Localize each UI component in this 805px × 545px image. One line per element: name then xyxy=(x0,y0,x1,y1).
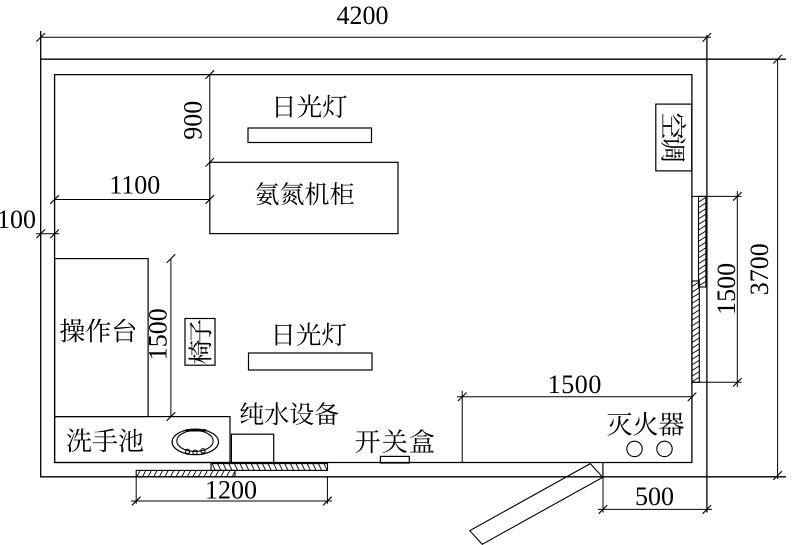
svg-text:3700: 3700 xyxy=(745,243,774,295)
svg-text:1500: 1500 xyxy=(712,263,741,315)
svg-text:4200: 4200 xyxy=(337,1,389,30)
svg-text:1500: 1500 xyxy=(548,370,602,399)
svg-text:100: 100 xyxy=(0,205,36,234)
svg-text:1200: 1200 xyxy=(205,476,257,505)
svg-text:500: 500 xyxy=(635,482,674,511)
svg-text:1100: 1100 xyxy=(109,170,160,199)
svg-text:900: 900 xyxy=(179,101,208,140)
